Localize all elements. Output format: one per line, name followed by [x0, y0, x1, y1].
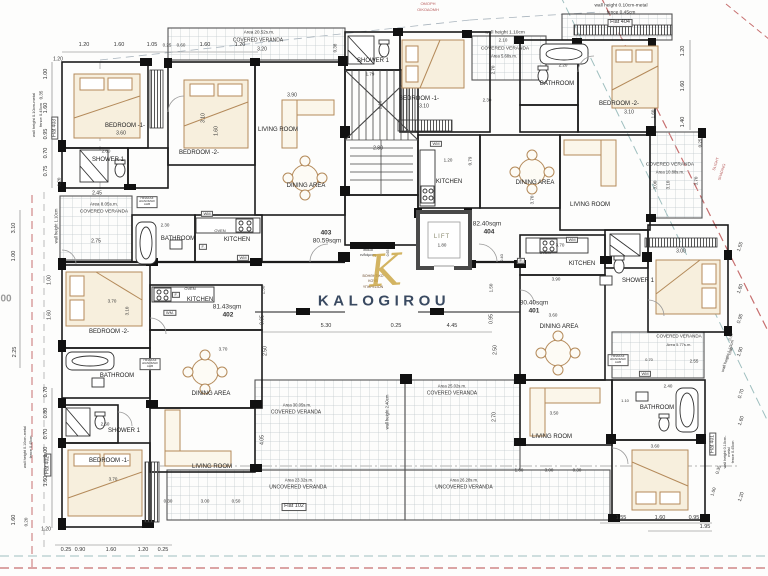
- dim: 0.35: [715, 465, 722, 475]
- dim: 1.60: [44, 476, 50, 487]
- room-label: DINING AREA: [287, 183, 326, 189]
- area-label: Area 26.28s.m.: [450, 479, 478, 484]
- dim: 0.35: [40, 91, 45, 100]
- wm-label: WM: [566, 237, 578, 243]
- dim: 0.25: [158, 548, 169, 554]
- area-label: Area 5.68s.m.: [491, 55, 517, 60]
- dim: 1.00: [47, 275, 52, 285]
- dim: 1.20: [41, 527, 51, 532]
- room-label: SHOWER 1: [622, 278, 654, 284]
- flat-number: 402: [223, 311, 234, 318]
- area-label: Area 10.88s.m.: [656, 171, 684, 176]
- room-label: COVERED VERANDA: [233, 38, 283, 43]
- room-label: BEDROOM -1-: [105, 123, 145, 129]
- dim: 2.30: [161, 224, 170, 229]
- dim: 1.00: [12, 251, 18, 262]
- room-label: BEDROOM -1-: [399, 96, 439, 102]
- room-label: COVERED VERANDA: [80, 209, 128, 214]
- dim: 0.95: [489, 314, 494, 324]
- room-label: DINING AREA: [192, 391, 231, 397]
- room-label: COVERED VERANDA: [656, 335, 701, 340]
- dim: 5.30: [321, 324, 332, 330]
- flat-number: 404: [484, 228, 495, 235]
- area-label: Area 23.32s.m.: [285, 479, 313, 484]
- dim: 1.10: [621, 399, 629, 403]
- room-label: BATHROOM: [640, 405, 674, 411]
- room-label: SHOWER 1: [92, 157, 124, 163]
- dim: 1.60: [47, 310, 52, 320]
- dim: 2.80: [373, 146, 383, 151]
- dim: 2.25: [13, 347, 19, 358]
- dim: 0.90: [75, 548, 86, 554]
- dim: 1.00: [44, 69, 50, 80]
- dim: 0.70: [645, 358, 653, 362]
- dim: 0.40: [500, 254, 504, 262]
- level-mark: 00: [0, 295, 11, 306]
- room-label: LIVING ROOM: [258, 127, 298, 133]
- fridge-label: F.: [517, 258, 525, 264]
- dim: 1.20: [138, 548, 149, 554]
- dim: 3.90: [287, 93, 297, 98]
- dim: 1.20: [444, 159, 453, 164]
- dim: 1.40: [681, 117, 687, 128]
- wm-label: WM: [430, 141, 442, 147]
- dim: 3.10: [667, 181, 672, 190]
- note: fence 0.45cm: [731, 441, 735, 464]
- dim: 2.30: [483, 99, 492, 104]
- dim: 0.25: [699, 139, 704, 148]
- room-label: SHOWER 1: [108, 428, 140, 434]
- dim: 3.60: [651, 445, 660, 450]
- dim: 1.60: [114, 43, 125, 49]
- area-label: Area 20.52s.m.: [244, 31, 275, 36]
- dim: 0.95: [689, 516, 700, 522]
- dim: 3.70: [109, 478, 118, 483]
- note: fence 0.45cm: [607, 10, 636, 15]
- dim: 1.20: [738, 492, 746, 503]
- dim: 3.10: [201, 113, 206, 123]
- dim: 0.65: [260, 315, 265, 325]
- fridge-label: F.: [199, 244, 207, 250]
- dim: 1.80: [438, 244, 447, 249]
- wm-label: WM: [201, 211, 213, 217]
- dim: 0.75: [44, 166, 50, 177]
- dim: 2.40: [664, 385, 673, 390]
- note: wall height 1.10cm: [55, 209, 60, 244]
- flat-area: 80.40sqm: [520, 299, 549, 306]
- dim: 3.60: [549, 314, 558, 319]
- dim: 3.00: [545, 469, 554, 474]
- dim: 0.95: [44, 129, 50, 140]
- flat-label: Flat 403: [51, 116, 58, 139]
- dim: 1.90: [737, 347, 745, 358]
- area-label: Area 30.05s.m.: [283, 404, 311, 409]
- dim: 1.55: [737, 242, 745, 253]
- dim: 4.45: [447, 324, 458, 330]
- room-label: COVERED VERANDA: [481, 46, 529, 51]
- flat-area: 81.43sqm: [213, 303, 242, 310]
- note: fence 0.45cm: [39, 103, 43, 127]
- room-label: DINING AREA: [516, 180, 555, 186]
- dim: 2.70: [492, 66, 497, 75]
- dim: 3.10: [12, 223, 18, 234]
- dim: 0.25: [163, 44, 172, 49]
- dim: 1.60: [44, 103, 50, 114]
- flat-label: Flat 401: [709, 432, 716, 455]
- dim: 1.50: [490, 284, 495, 293]
- brand-watermark: K: [367, 244, 403, 297]
- lift-label: LIFT: [434, 234, 450, 240]
- note: wall height 0.10cm-metal: [723, 432, 731, 473]
- panel-box: ΠΙΝΑΚΑΣ ΔΙΑΝΟΜΗΣ ΑΗΒ: [140, 358, 161, 370]
- wm-label: WM: [639, 371, 651, 377]
- dim: 3.70: [531, 196, 536, 205]
- room-label: BEDROOM -2-: [599, 101, 639, 107]
- floor-plan: 1.201.601.050.250.601.601.201.200.35Area…: [0, 0, 768, 576]
- dim: 3.90: [552, 278, 561, 283]
- oven-label: OVEN: [184, 287, 195, 291]
- oven-label: OVEN: [214, 229, 225, 233]
- room-label: BATHROOM: [540, 81, 574, 87]
- room-label: KITCHEN: [224, 237, 250, 243]
- note: wall height 1.10cm: [485, 30, 525, 35]
- dim: 1.10: [379, 101, 384, 110]
- flat-area: 82.40sqm: [473, 220, 502, 227]
- dim: 0.30: [164, 500, 173, 505]
- flat-number: 401: [529, 307, 540, 314]
- dim: 0.70: [738, 389, 746, 400]
- dim: 0.80: [44, 408, 50, 419]
- room-label: BEDROOM -1-: [89, 458, 129, 464]
- dim: 1.60: [214, 126, 219, 136]
- room-label: COVERED VERANDA: [271, 410, 321, 415]
- dim: 1.20: [681, 46, 687, 57]
- flat-label: Flat 404: [608, 19, 633, 27]
- dim: 3.10: [126, 307, 131, 316]
- note-red: SHADING: [717, 163, 726, 181]
- dim: 3.00: [676, 249, 686, 254]
- dim: 3.70: [556, 244, 565, 249]
- panel-box: ΠΙΝΑΚΑΣ ΔΙΑΝΟΜΗΣ ΑΗΒ: [137, 196, 158, 208]
- dim: 0.70: [44, 429, 50, 440]
- fridge-label: F.: [172, 292, 180, 298]
- dim: 1.60: [106, 548, 117, 554]
- dim: 1.60: [655, 516, 666, 522]
- dim: 0.38: [334, 44, 339, 53]
- note: wall height 0.10cm-metal: [594, 3, 647, 8]
- dim: 0.70: [44, 387, 50, 398]
- dim: 1.95: [700, 525, 711, 531]
- dim: 1.60: [737, 284, 745, 295]
- room-label: LIVING ROOM: [192, 464, 232, 470]
- dim: 0.25: [61, 548, 72, 554]
- dim: 1.60: [652, 110, 657, 119]
- dim: 2.20: [559, 64, 568, 69]
- room-label: SHOWER 1: [357, 58, 389, 64]
- note: fence 0.45cm: [29, 436, 33, 459]
- dim: 1.05: [147, 43, 158, 49]
- dim: 3.00: [654, 181, 659, 190]
- dim: 2.10: [499, 39, 508, 44]
- dim: 3.70: [219, 348, 228, 353]
- dim: 0.30: [573, 469, 582, 474]
- dim: 0.79: [469, 157, 474, 166]
- dim: 0.95: [737, 314, 745, 325]
- oven-label: OVEN: [539, 251, 550, 255]
- note-red: SLIGHT: [712, 157, 720, 171]
- dim: 1.20: [235, 43, 246, 49]
- dim: 3.20: [257, 47, 267, 52]
- dim: 1.20: [53, 57, 63, 62]
- note-red: ΟΜΟΡΗ: [420, 2, 435, 6]
- flat-area: 80.59sqm: [313, 237, 342, 244]
- note: wall height 1.10cm: [721, 340, 735, 373]
- dim: 2.50: [493, 345, 498, 355]
- room-label: KITCHEN: [569, 261, 595, 267]
- room-label: BEDROOM -2-: [179, 150, 219, 156]
- room-label: KITCHEN: [187, 297, 213, 303]
- dim: 0.20: [58, 178, 63, 187]
- room-label: COVERED VERANDA: [646, 162, 694, 167]
- room-label: KITCHEN: [436, 179, 462, 185]
- note-red: ΟΙΚΟΔΟΜΗ: [417, 8, 439, 12]
- wm-label: WM.: [163, 310, 176, 316]
- room-label: COVERED VERANDA: [427, 391, 477, 396]
- dim: 4.05: [260, 435, 265, 445]
- dim: 1.79: [366, 73, 375, 78]
- dim: 3.10: [419, 104, 429, 109]
- room-label: BATHROOM: [100, 373, 134, 379]
- area-label: Area 25.02s.m.: [438, 385, 466, 390]
- dim: 1.55: [616, 516, 627, 522]
- dim: 1.60: [200, 43, 211, 49]
- room-label: DINING AREA: [540, 324, 579, 330]
- wm-label: WM: [237, 255, 249, 261]
- room-label: BATHROOM: [161, 236, 195, 242]
- dim: 2.75: [91, 239, 101, 244]
- area-label: Area 5.77s.m.: [667, 343, 692, 347]
- dim: 0.25: [391, 324, 402, 330]
- note: wall height 0.10cm-metal: [23, 426, 27, 468]
- room-label: LIVING ROOM: [570, 202, 610, 208]
- dim: 2.55: [690, 360, 699, 365]
- area-label: Area 8.05s.m.: [90, 203, 118, 208]
- note: wall height 2.40cm: [386, 395, 391, 430]
- brand-title: KALOGIROU: [318, 293, 450, 310]
- dim: 2.60: [101, 423, 110, 428]
- dim: 2.50: [263, 346, 268, 356]
- note: wall height 0.10cm-metal: [32, 93, 36, 137]
- dim: 2.70: [492, 412, 497, 422]
- room-label: UNCOVERED VERANDA: [269, 485, 327, 490]
- dim: 0.70: [44, 148, 50, 159]
- dim: 0.20: [25, 518, 30, 527]
- flat-label: Flat 102: [282, 503, 307, 511]
- dim: 3.70: [108, 300, 117, 305]
- room-label: BEDROOM -2-: [89, 329, 129, 335]
- dim: 3.70: [695, 177, 700, 186]
- dim: 1.00: [44, 447, 50, 458]
- room-label: UNCOVERED VERANDA: [435, 485, 493, 490]
- flat-number: 403: [321, 229, 332, 236]
- dim: 1.60: [681, 81, 687, 92]
- panel-box: ΠΙΝΑΚΑΣ ΔΙΑΝΟΜΗΣ ΑΗΒ: [608, 354, 629, 366]
- dim: 2.60: [102, 150, 111, 155]
- dim: 2.45: [92, 191, 102, 196]
- dim: 3.50: [550, 412, 559, 417]
- dim: 1.60: [738, 416, 746, 427]
- dim: 3.00: [201, 500, 210, 505]
- dim: 1.60: [12, 515, 18, 526]
- dim: 0.60: [177, 44, 186, 49]
- room-label: LIVING ROOM: [532, 434, 572, 440]
- dim: 0.50: [232, 500, 241, 505]
- dim: 1.50: [262, 286, 267, 295]
- dim: 1.60: [515, 469, 524, 474]
- dim: 3.60: [116, 131, 126, 136]
- dim: 1.00: [710, 487, 717, 497]
- dim: 3.10: [624, 110, 634, 115]
- dim: 1.20: [79, 43, 90, 49]
